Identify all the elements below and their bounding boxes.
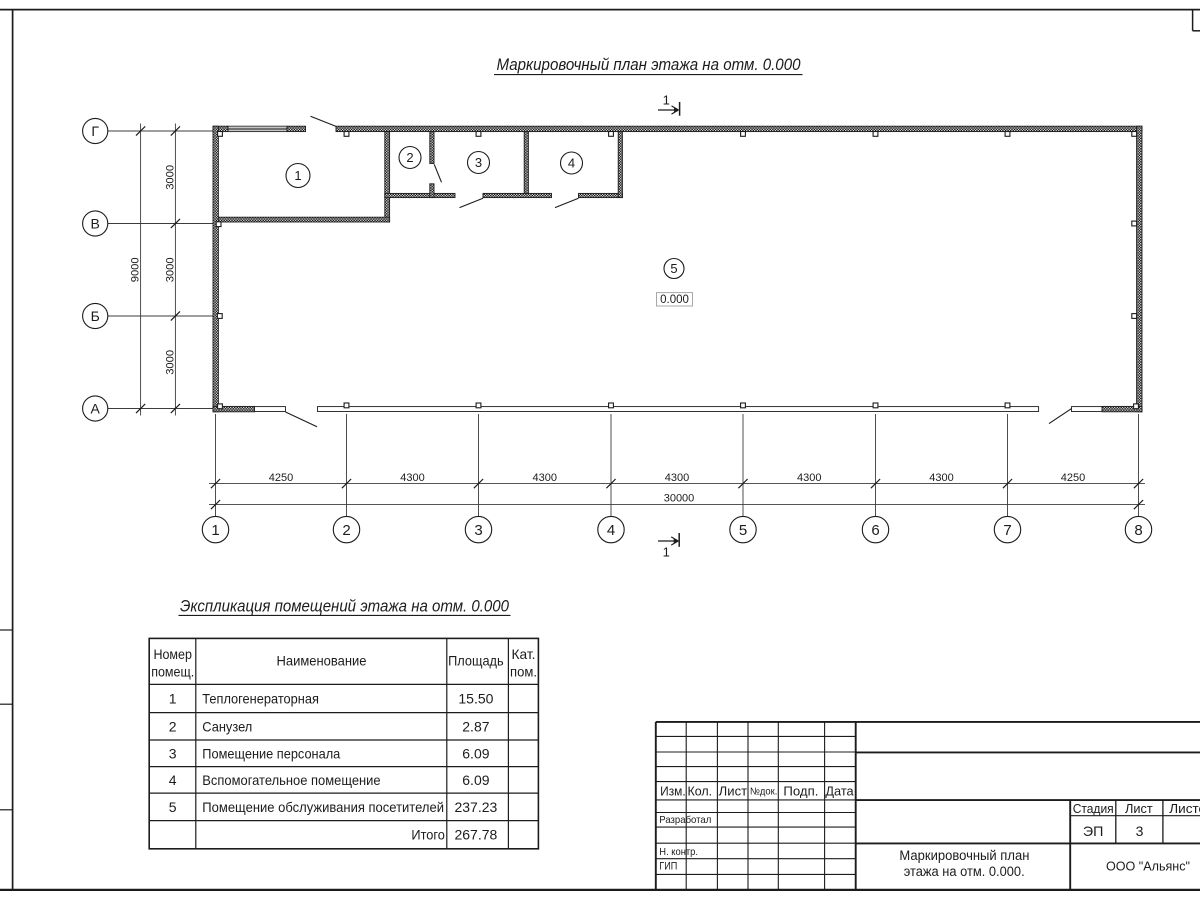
svg-text:4: 4 [607, 522, 615, 539]
svg-text:1: 1 [211, 522, 219, 539]
svg-text:3000: 3000 [164, 257, 176, 282]
svg-text:4: 4 [568, 156, 575, 171]
svg-text:Итого: Итого [411, 827, 445, 843]
svg-text:Н. контр.: Н. контр. [659, 846, 698, 858]
svg-text:Теплогенераторная: Теплогенераторная [202, 691, 319, 707]
svg-text:5: 5 [739, 522, 747, 539]
svg-text:3: 3 [1136, 823, 1144, 839]
svg-text:помещ.: помещ. [151, 664, 194, 680]
svg-text:Б: Б [91, 308, 100, 324]
svg-text:1: 1 [294, 168, 301, 183]
svg-text:А: А [91, 400, 101, 416]
svg-text:6: 6 [871, 522, 879, 539]
svg-text:4300: 4300 [929, 472, 953, 484]
svg-text:Помещение обслуживания посетит: Помещение обслуживания посетителей [202, 799, 444, 815]
svg-text:3000: 3000 [164, 165, 176, 190]
svg-text:3000: 3000 [164, 350, 176, 375]
svg-text:267.78: 267.78 [454, 827, 497, 843]
svg-text:этажа на отм. 0.000.: этажа на отм. 0.000. [904, 864, 1025, 879]
svg-text:2: 2 [342, 522, 350, 539]
svg-text:6.09: 6.09 [462, 745, 489, 761]
svg-text:2: 2 [406, 150, 413, 165]
svg-text:4300: 4300 [665, 472, 689, 484]
svg-text:15.50: 15.50 [458, 691, 493, 707]
svg-text:Стадия: Стадия [1073, 802, 1114, 816]
svg-text:№док.: №док. [750, 787, 777, 798]
svg-text:3: 3 [475, 155, 482, 170]
svg-text:0.000: 0.000 [660, 294, 689, 306]
svg-text:7: 7 [1003, 522, 1011, 539]
svg-text:237.23: 237.23 [454, 799, 497, 815]
svg-text:6.09: 6.09 [462, 772, 489, 788]
svg-text:Экспликация помещений этажа на: Экспликация помещений этажа на отм. 0.00… [180, 597, 510, 615]
svg-text:4300: 4300 [400, 472, 424, 484]
svg-text:9000: 9000 [130, 257, 142, 282]
svg-text:2.87: 2.87 [462, 718, 489, 734]
svg-text:Площадь: Площадь [448, 653, 504, 669]
svg-text:1: 1 [169, 691, 177, 707]
svg-text:4300: 4300 [533, 472, 557, 484]
svg-text:Дата: Дата [825, 784, 854, 799]
svg-text:Вспомогательное помещение: Вспомогательное помещение [202, 772, 380, 788]
svg-text:3: 3 [169, 745, 177, 761]
svg-text:ГИП: ГИП [659, 860, 677, 872]
svg-text:30000: 30000 [664, 493, 695, 505]
svg-text:Помещение персонала: Помещение персонала [202, 745, 340, 761]
svg-text:Лист: Лист [1125, 802, 1153, 816]
svg-text:Листов: Листов [1169, 802, 1200, 816]
svg-text:Разработал: Разработал [659, 814, 711, 826]
svg-text:Наименование: Наименование [277, 653, 367, 669]
svg-text:Лист: Лист [719, 784, 747, 799]
svg-text:1: 1 [663, 545, 670, 560]
svg-text:4300: 4300 [797, 472, 821, 484]
svg-text:Г: Г [91, 123, 99, 139]
svg-text:Номер: Номер [153, 646, 192, 662]
svg-text:Маркировочный план: Маркировочный план [899, 848, 1029, 863]
svg-text:Кол.: Кол. [688, 784, 713, 799]
svg-text:Кат.: Кат. [512, 646, 536, 662]
svg-text:Изм.: Изм. [660, 784, 686, 799]
svg-text:Санузел: Санузел [202, 718, 252, 734]
svg-text:4250: 4250 [1061, 472, 1085, 484]
svg-text:пом.: пом. [510, 664, 537, 680]
svg-text:4: 4 [169, 772, 177, 788]
svg-text:ООО "Альянс": ООО "Альянс" [1106, 859, 1190, 874]
svg-text:Подп.: Подп. [783, 784, 818, 799]
svg-text:4250: 4250 [269, 472, 293, 484]
svg-text:Маркировочный план этажа на от: Маркировочный план этажа на отм. 0.000 [497, 56, 802, 74]
svg-text:5: 5 [169, 799, 177, 815]
svg-text:1: 1 [663, 92, 670, 107]
svg-text:2: 2 [169, 718, 177, 734]
svg-text:ЭП: ЭП [1083, 823, 1104, 839]
svg-text:В: В [91, 215, 100, 231]
svg-text:8: 8 [1134, 522, 1142, 539]
svg-text:5: 5 [670, 261, 677, 276]
svg-text:3: 3 [474, 522, 482, 539]
